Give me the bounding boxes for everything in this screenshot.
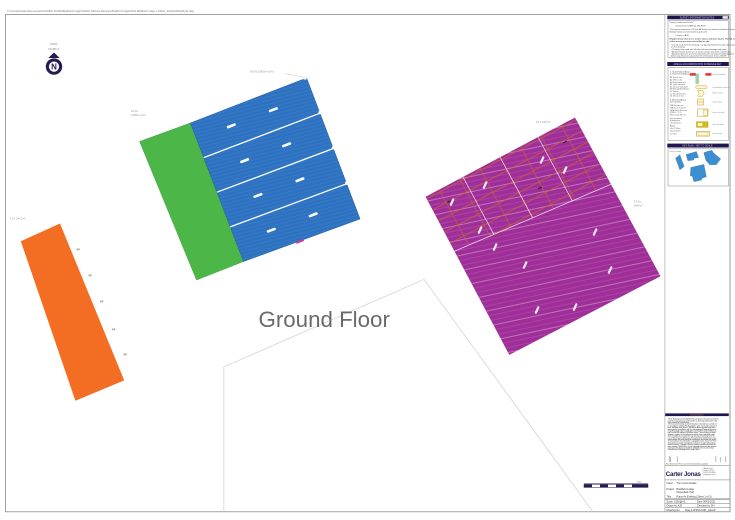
svg-text:Drawn by AJS: Drawn by AJS: [667, 505, 683, 508]
svg-text:18.3m: 18.3m: [131, 109, 138, 113]
svg-text:Ground Floor: Ground Floor: [259, 307, 391, 332]
svg-text:AREA & ACCOMMODATION SCHEDULE: AREA & ACCOMMODATION SCHEDULE KEY: [674, 63, 722, 66]
svg-text:Checked by SH: Checked by SH: [697, 505, 715, 508]
svg-text:9640m²: 9640m²: [634, 204, 643, 208]
svg-text:30.5 158.2m: 30.5 158.2m: [536, 120, 550, 124]
svg-text:2. Gross Internal Areas: 2. Gross Internal Areas: [670, 73, 689, 76]
svg-text:Fence line/wall: Fence line/wall: [713, 112, 725, 114]
svg-text:The Crown Estate: The Crown Estate: [677, 482, 698, 485]
svg-text:Hard standing: Hard standing: [713, 123, 724, 126]
svg-text:- Datum level: OSBM 42.18m AOD: - Datum level: OSBM 42.18m AOD: [675, 25, 706, 28]
svg-text:Danesfield Yard: Danesfield Yard: [677, 491, 695, 494]
svg-text:KEY PLAN - NOT TO SCALE: KEY PLAN - NOT TO SCALE: [683, 145, 713, 148]
svg-text:Site Location: Site Location: [670, 150, 682, 153]
svg-text:Scale 1:500@A1: Scale 1:500@A1: [667, 501, 686, 504]
svg-text:Newlyn Datum and orientated to: Newlyn Datum and orientated to grid nort…: [670, 30, 709, 33]
svg-text:NORTH: NORTH: [48, 47, 59, 51]
svg-text:Grass verge: Grass verge: [713, 133, 723, 135]
svg-text:Carter Jonas: Carter Jonas: [666, 471, 702, 478]
svg-text:Existing building: Existing building: [713, 73, 726, 76]
svg-text:▲ Total: ▲ Total: [670, 133, 677, 136]
svg-text:before any reliance is placed: before any reliance is placed on the inf…: [671, 55, 727, 58]
svg-text:Plans As Existing (Sheet 1 of: Plans As Existing (Sheet 1 of 3): [677, 495, 712, 498]
svg-text:Drawing No.: Drawing No.: [667, 509, 681, 512]
svg-text:of the survey area was not ver: of the survey area was not verified on s…: [670, 40, 711, 43]
svg-text:carterjonas.co.uk: carterjonas.co.uk: [703, 473, 716, 476]
svg-text:50m: 50m: [637, 482, 641, 484]
svg-text:27.4 146.2m²: 27.4 146.2m²: [10, 217, 25, 221]
svg-text:- Levels: m AOD: - Levels: m AOD: [675, 34, 690, 37]
svg-text:SURVEY INFORMATION NOTES: SURVEY INFORMATION NOTES: [680, 16, 715, 19]
svg-text:Client: Client: [667, 482, 674, 485]
svg-text:36.9m 2950m² (GIA): 36.9m 2950m² (GIA): [250, 70, 274, 74]
svg-text:RICS Code 6th ed.: RICS Code 6th ed.: [670, 113, 686, 116]
svg-text:C:\Users\techserv\Documents\CA: C:\Users\techserv\Documents\CARTER JONAS…: [7, 9, 194, 13]
svg-text:Dwg-x-xPD10-0-B1_plansP: Dwg-x-xPD10-0-B1_plansP: [685, 509, 716, 512]
svg-text:N: N: [51, 63, 57, 72]
svg-text:57.8m: 57.8m: [634, 200, 641, 204]
svg-text:Date 09/02/2021: Date 09/02/2021: [697, 501, 716, 504]
svg-text:Title: Title: [667, 495, 672, 498]
svg-text:D1 Non-resi inst.: D1 Non-resi inst.: [670, 95, 685, 98]
svg-text:Unit divisions: Unit divisions: [670, 122, 681, 125]
svg-text:General Notes: General Notes: [690, 414, 703, 417]
svg-text:GRID: GRID: [50, 42, 58, 46]
svg-text:1295m² yard: 1295m² yard: [131, 113, 146, 117]
svg-text:Kerb outline: Kerb outline: [713, 101, 723, 104]
svg-text:Survey Control and Levels: Survey Control and Levels: [670, 21, 693, 24]
svg-text:Water feature: Water feature: [713, 92, 724, 95]
svg-text:(net internal): (net internal): [670, 101, 681, 104]
svg-text:Infrastructure & Energy team,: Infrastructure & Energy team, Leeds offi…: [668, 448, 701, 451]
svg-text:Project: Project: [667, 488, 675, 491]
svg-text:Rev A 12.02.21 First issue: Rev A 12.02.21 First issue B 19.02.21 Ar…: [666, 462, 708, 465]
svg-text:Demolished structure: Demolished structure: [713, 86, 730, 89]
svg-text:Unit 2 529m²: Unit 2 529m²: [670, 129, 681, 132]
